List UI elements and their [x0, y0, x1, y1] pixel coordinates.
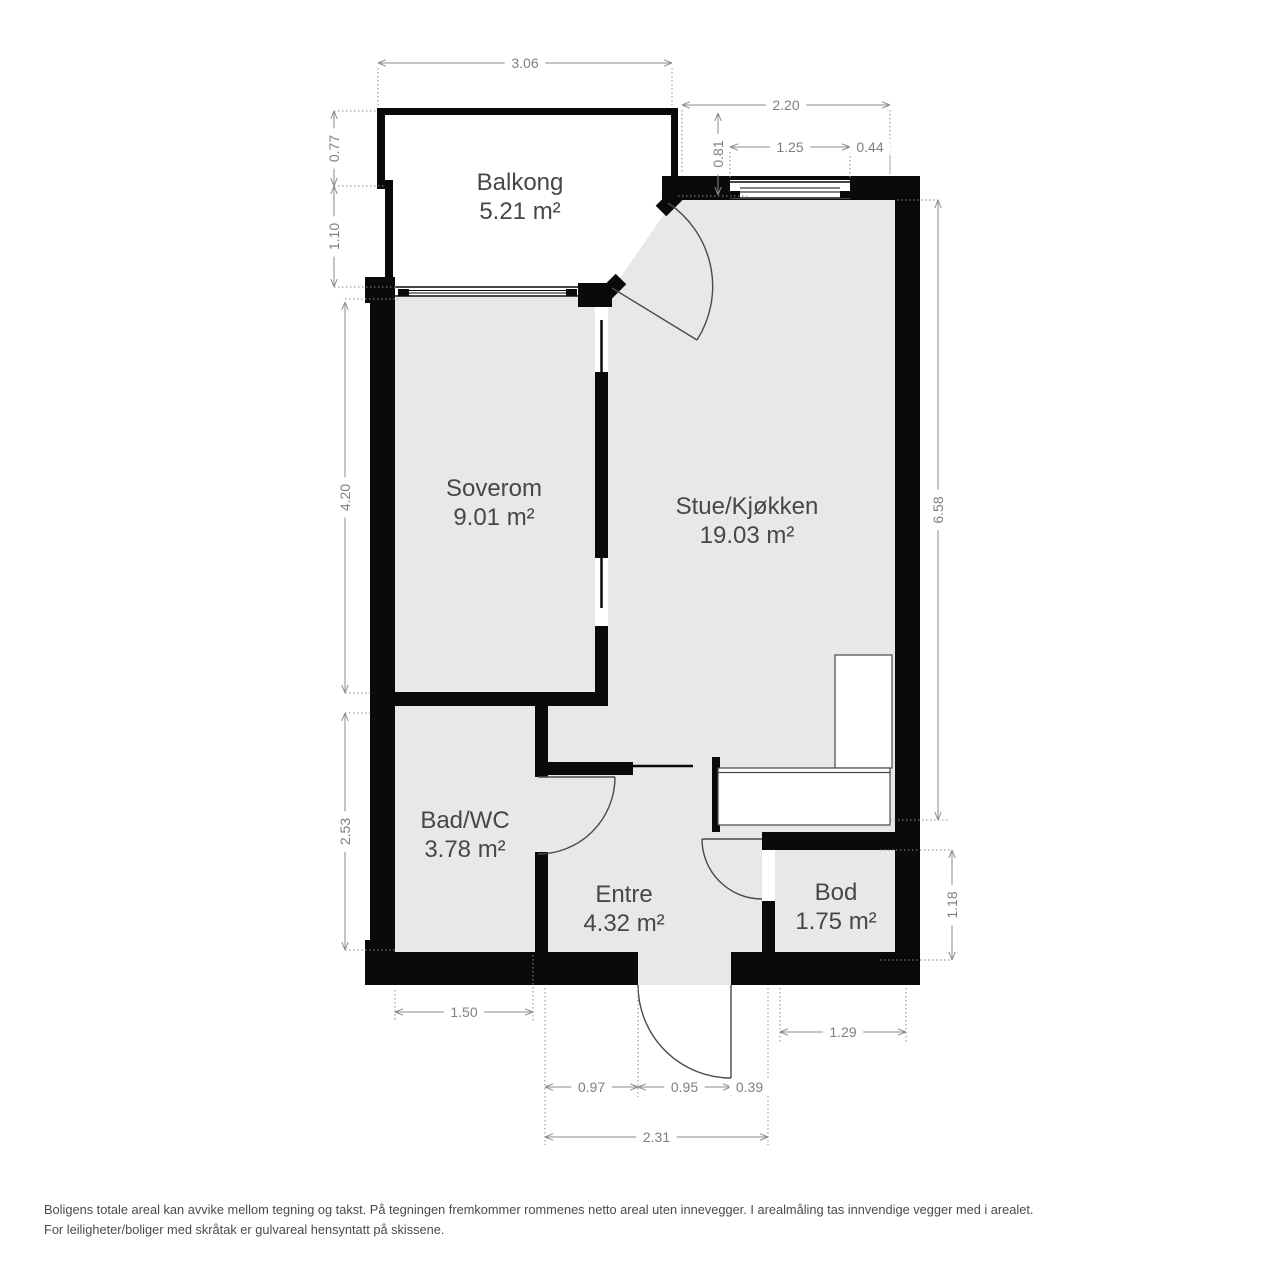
wall-bod-top: [762, 832, 920, 850]
dim-bod_width: 1.29: [780, 1024, 906, 1040]
dim-label-balcony_door_drop: 0.81: [710, 140, 726, 167]
room-area-balkong: 5.21 m²: [479, 198, 560, 225]
wall-soverom-bad: [370, 692, 608, 706]
wall-main-left: [370, 277, 395, 985]
dim-label-balcony_left_lower: 1.10: [326, 223, 342, 250]
floors: [395, 200, 895, 985]
dim-kitchen_top_width: 2.20: [682, 97, 890, 113]
wall-bottom-left: [365, 952, 638, 985]
room-area-soverom: 9.01 m²: [453, 504, 534, 531]
window-balcony: [395, 286, 578, 297]
dim-kitchen_window_right: 0.44: [850, 139, 890, 155]
floor-entre-doorway: [638, 952, 731, 985]
dim-entrance_total: 2.31: [545, 1129, 768, 1145]
dim-label-kitchen_window_right: 0.44: [856, 139, 883, 155]
dim-top_width: 3.06: [378, 55, 672, 71]
dim-kitchen_window_width: 1.25: [730, 139, 850, 155]
wall-bad-right-lower: [535, 852, 548, 962]
dim-label-entrance_right: 0.39: [736, 1079, 763, 1095]
dim-label-entrance_door: 0.95: [671, 1079, 698, 1095]
room-area-bod: 1.75 m²: [795, 908, 876, 935]
room-area-stue: 19.03 m²: [700, 522, 795, 549]
room-label-stue: Stue/Kjøkken: [676, 493, 819, 520]
window-kitchen: [730, 180, 850, 199]
room-area-entre: 4.32 m²: [583, 910, 664, 937]
dim-label-balcony_left_upper: 0.77: [326, 135, 342, 162]
dim-label-top_width: 3.06: [511, 55, 538, 71]
dim-label-bad_height: 2.53: [337, 818, 353, 845]
dim-stue_height: 6.58: [930, 200, 946, 820]
dim-balcony_left_upper: 0.77: [326, 111, 342, 186]
dim-label-kitchen_window_width: 1.25: [776, 139, 803, 155]
dim-bod_height: 1.18: [944, 850, 960, 960]
dim-bad_height: 2.53: [337, 713, 353, 950]
wall-middle-lower: [595, 626, 608, 694]
room-label-bad: Bad/WC: [420, 807, 509, 834]
floor-bad-door-gap: [535, 777, 548, 852]
dim-label-bad_width: 1.50: [450, 1004, 477, 1020]
room-label-balkong: Balkong: [477, 169, 564, 196]
wall-middle-upper: [595, 372, 608, 558]
floorplan-drawing: Balkong 5.21 m² Soverom 9.01 m² Stue/Kjø…: [0, 0, 1280, 1280]
wall-main-right: [895, 176, 920, 985]
dim-label-bod_width: 1.29: [829, 1024, 856, 1040]
room-area-bad: 3.78 m²: [424, 836, 505, 863]
footer-note: Boligens totale areal kan avvike mellom …: [44, 1200, 1234, 1240]
dim-label-entrance_left: 0.97: [578, 1079, 605, 1095]
dim-bad_width: 1.50: [395, 1004, 533, 1020]
dim-entrance_left: 0.97: [545, 1079, 638, 1095]
room-label-soverom: Soverom: [446, 475, 542, 502]
wall-bod-left: [762, 901, 775, 962]
dim-soverom_height: 4.20: [337, 302, 353, 693]
wall-corridor: [535, 762, 633, 775]
wall-balcony-left-upper: [377, 108, 385, 185]
dim-entrance_right: 0.39: [729, 1079, 769, 1095]
kitchen-counter-horizontal: [718, 768, 890, 825]
dim-balcony_left_lower: 1.10: [326, 186, 342, 287]
door-entrance: [638, 985, 731, 1078]
wall-balcony-top: [377, 108, 678, 115]
wall-balcony-left-lower: [385, 183, 393, 277]
dim-label-bod_height: 1.18: [944, 891, 960, 918]
dim-label-stue_height: 6.58: [930, 496, 946, 523]
footer-note-line1: Boligens totale areal kan avvike mellom …: [44, 1200, 1234, 1220]
floorplan-page: Balkong 5.21 m² Soverom 9.01 m² Stue/Kjø…: [0, 0, 1280, 1280]
dim-entrance_door: 0.95: [638, 1079, 731, 1095]
dim-label-entrance_total: 2.31: [643, 1129, 670, 1145]
footer-note-line2: For leiligheter/boliger med skråtak er g…: [44, 1220, 1234, 1240]
room-label-bod: Bod: [815, 879, 858, 906]
room-label-entre: Entre: [595, 881, 652, 908]
dim-label-kitchen_top_width: 2.20: [772, 97, 799, 113]
kitchen-cabinet-vertical: [835, 655, 892, 768]
wall-bottom-right: [731, 952, 920, 985]
dim-label-soverom_height: 4.20: [337, 484, 353, 511]
